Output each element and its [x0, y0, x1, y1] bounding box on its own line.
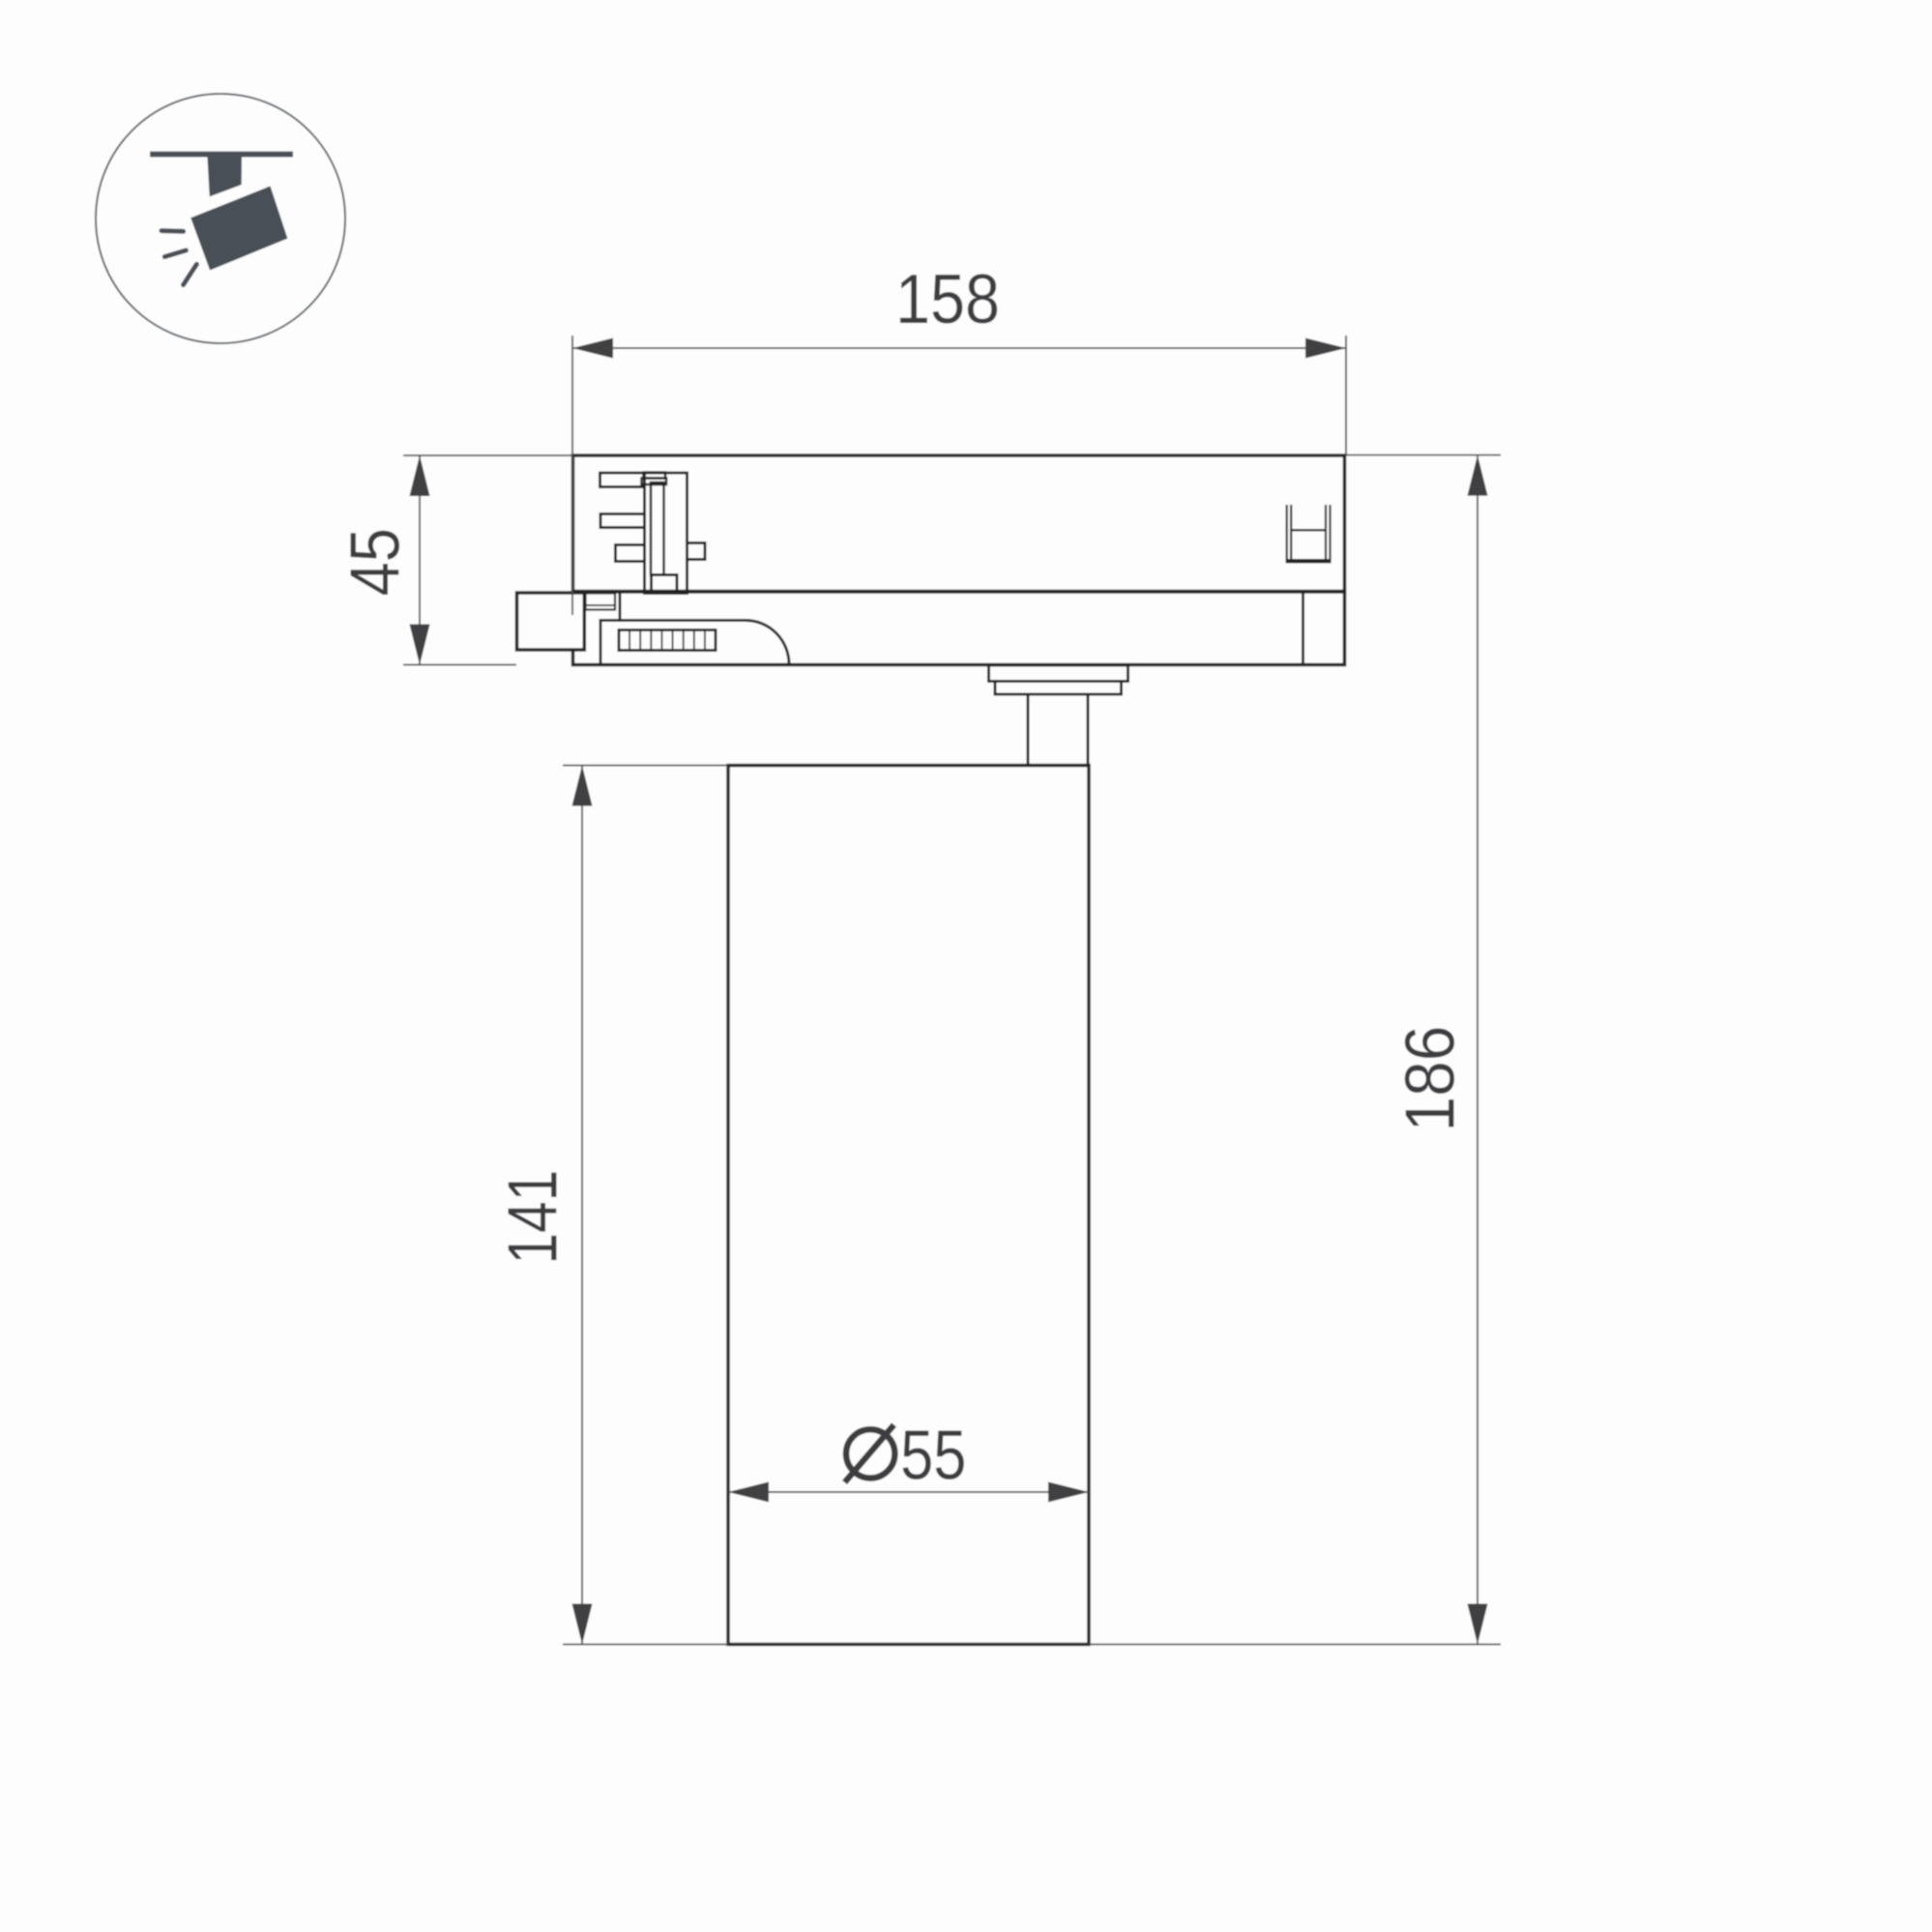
- svg-text:186: 186: [1392, 1026, 1470, 1132]
- svg-text:158: 158: [895, 261, 1000, 338]
- svg-text:141: 141: [494, 1170, 571, 1265]
- svg-text:45: 45: [337, 528, 415, 596]
- svg-text:55: 55: [900, 1418, 966, 1495]
